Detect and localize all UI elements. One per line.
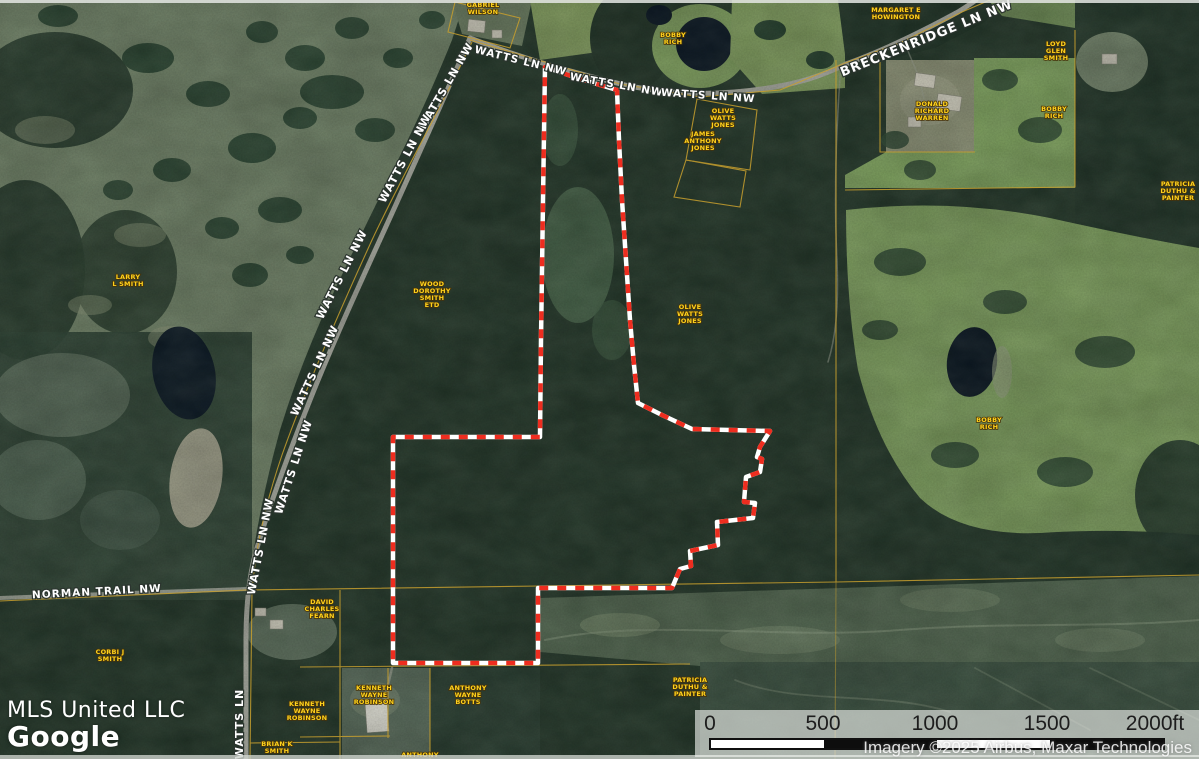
texture-overlay [0, 0, 1199, 759]
owner-parcel-label: PATRICIADUTHU &PAINTER [1160, 180, 1195, 202]
owner-parcel-label: CORBI JSMITH [96, 648, 125, 663]
top-edge-strip [0, 0, 1199, 3]
satellite-map: GABRIELWILSONMARGARET EHOWINGTONBOBBYRIC… [0, 0, 1199, 759]
owner-parcel-label: MARGARET EHOWINGTON [871, 6, 920, 21]
owner-parcel-label: LOYDGLENSMITH [1044, 40, 1068, 62]
google-logo[interactable]: Google [7, 720, 120, 753]
owner-parcel-label: OLIVEWATTSJONES [677, 303, 703, 325]
owner-parcel-label: GABRIELWILSON [467, 1, 500, 16]
owner-parcel-label: BOBBYRICH [976, 416, 1002, 431]
scale-tick-label: 2000ft [1126, 712, 1184, 736]
scale-tick-label: 1500 [1024, 712, 1071, 736]
owner-parcel-label: BOBBYRICH [660, 31, 686, 46]
owner-parcel-label: OLIVEWATTSJONES [710, 107, 736, 129]
owner-parcel-label: LARRYL SMITH [112, 273, 143, 288]
scale-tick-label: 1000 [912, 712, 959, 736]
scale-tick-label: 500 [805, 712, 840, 736]
owner-parcel-label: BOBBYRICH [1041, 105, 1067, 120]
road-label: WATTS LN [233, 689, 246, 759]
map-canvas[interactable]: GABRIELWILSONMARGARET EHOWINGTONBOBBYRIC… [0, 0, 1199, 759]
owner-parcel-label: DONALDRICHARDWARREN [915, 100, 950, 122]
imagery-attribution: Imagery ©2025 Airbus, Maxar Technologies [863, 738, 1192, 758]
owner-parcel-label: BRIAN KSMITH [261, 740, 293, 755]
owner-parcel-label: PATRICIADUTHU &PAINTER [672, 676, 707, 698]
scale-tick-label: 0 [704, 712, 716, 736]
